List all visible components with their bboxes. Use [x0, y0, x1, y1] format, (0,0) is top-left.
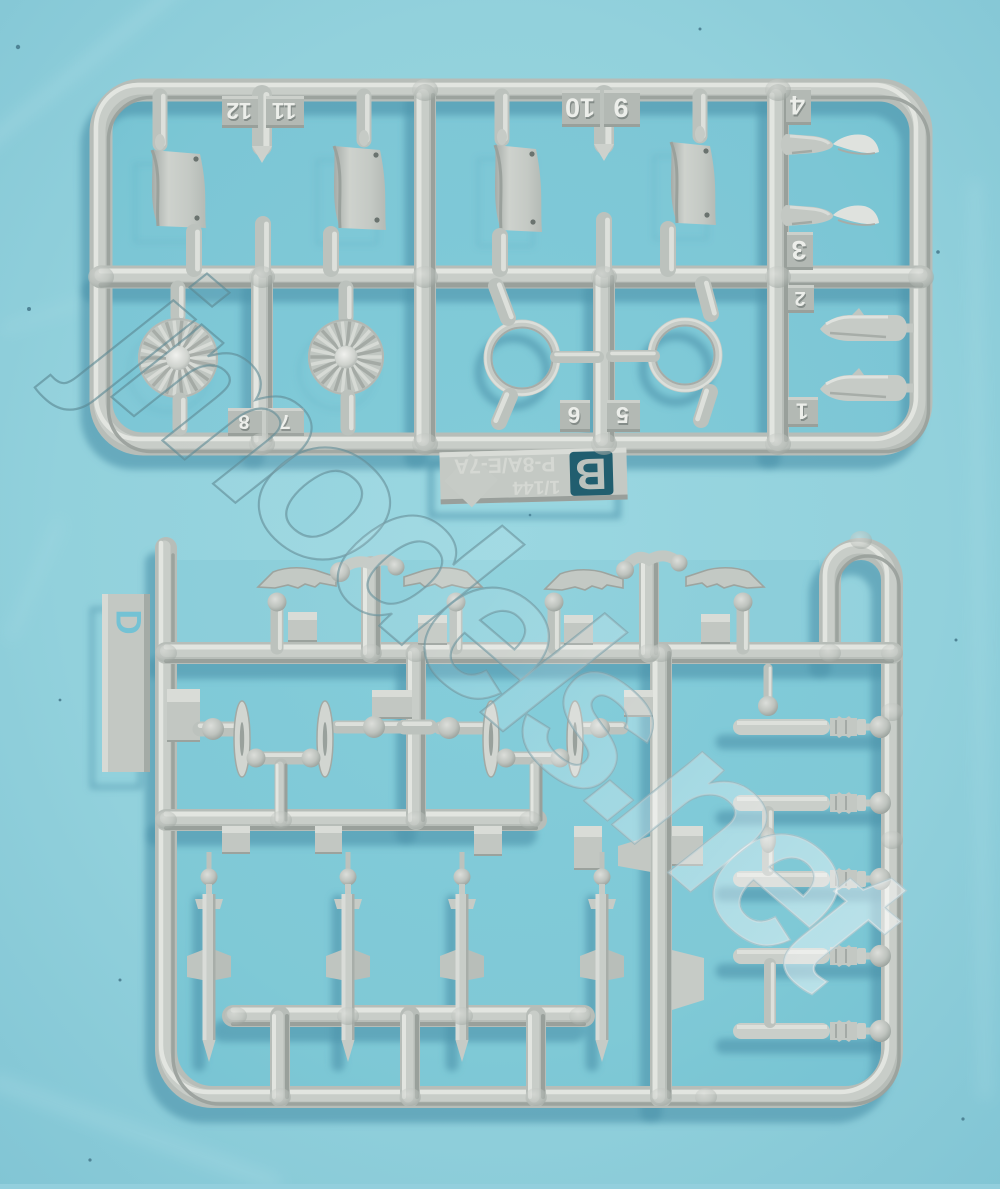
svg-text:10: 10: [565, 93, 595, 123]
svg-text:5: 5: [616, 402, 629, 428]
svg-text:11: 11: [272, 98, 297, 124]
svg-text:3: 3: [791, 235, 806, 265]
svg-text:1: 1: [796, 399, 808, 424]
svg-text:2: 2: [794, 287, 805, 309]
svg-text:12: 12: [226, 98, 252, 124]
svg-text:9: 9: [613, 93, 628, 123]
svg-text:D: D: [109, 609, 148, 634]
svg-text:4: 4: [790, 90, 805, 120]
svg-text:B: B: [574, 448, 607, 498]
svg-text:6: 6: [568, 402, 581, 428]
